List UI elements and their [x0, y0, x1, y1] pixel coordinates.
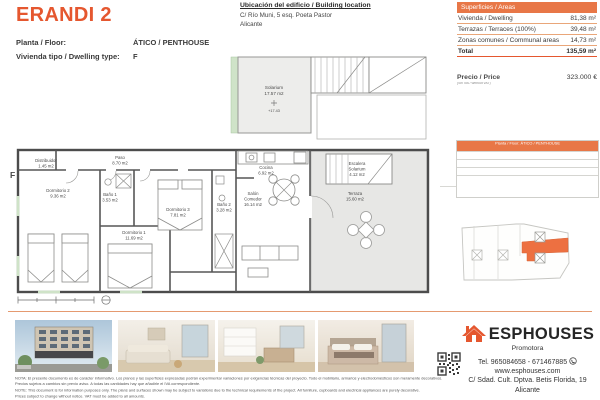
room-label-solarium: Solarium — [265, 85, 283, 90]
area-value: 81,38 m² — [570, 15, 596, 22]
room-label-salon-2: Comedor — [244, 197, 262, 202]
floor-key-row — [457, 151, 598, 159]
location-city: Alicante — [240, 21, 371, 28]
areas-table: Superficies / Areas Vivienda / Dwelling … — [457, 2, 597, 57]
room-label-salon-1: Salón — [248, 191, 260, 196]
kitchen-photo — [218, 320, 315, 372]
building-location: Ubicación del edificio / Building locati… — [240, 2, 371, 28]
total-value: 135,59 m² — [566, 48, 596, 55]
photo-thumbnail-building — [15, 320, 112, 372]
room-label-bano-1: Baño 1 — [103, 192, 117, 197]
brand-logo: ESPHOUSES — [455, 324, 600, 344]
area-label: Terrazas / Terraces (100%) — [458, 26, 536, 33]
room-area-dormitorio-2: 9.36 m2 — [50, 194, 66, 199]
room-label-distribuidor: Distribuidor — [35, 158, 57, 163]
house-icon — [461, 324, 487, 344]
table-row: Vivienda / Dwelling 81,38 m² — [457, 13, 597, 24]
room-area-cocina: 6.92 m2 — [258, 171, 274, 176]
room-area-dormitorio-3: 7.81 m2 — [170, 213, 186, 218]
floor-value: ÁTICO / PENTHOUSE — [133, 32, 209, 50]
total-label: Total — [458, 48, 473, 55]
unit-letter: F — [10, 170, 15, 180]
room-area-escalera: 4.12 m2 — [349, 172, 365, 177]
table-row: Terrazas / Terraces (100%) 39,48 m² — [457, 24, 597, 35]
area-value: 39,48 m² — [570, 26, 596, 33]
price-block: Precio / Price (Sin IVA / Without VAT) 3… — [457, 74, 597, 88]
legal-disclaimer: NOTA: El presente documento es de caráct… — [15, 376, 437, 400]
solarium-plan: Solarium 17.57 m2 +17.43 — [226, 52, 432, 142]
room-area-salon: 16.14 m2 — [244, 202, 263, 207]
phone-icon — [569, 357, 577, 365]
room-area-paso: 8.70 m2 — [112, 161, 128, 166]
floor-key-table: Planta / Floor: ÁTICO / PENTHOUSE — [456, 140, 599, 198]
brand-phone: Tel. 965084658 - 671467885 — [455, 357, 600, 367]
area-value: 14,73 m² — [570, 37, 596, 44]
living-room-photo — [118, 320, 215, 372]
room-area-bano-1: 3.53 m2 — [102, 198, 118, 203]
brand-website[interactable]: www.esphouses.com — [455, 367, 600, 376]
project-title: ERANDI 2 — [16, 4, 112, 26]
room-label-cocina: Cocina — [259, 165, 273, 170]
scale-bar — [18, 296, 110, 304]
brand-name: ESPHOUSES — [489, 325, 594, 344]
page-title: ERANDI 2 — [16, 4, 112, 27]
photo-thumbnail-bedroom — [318, 320, 414, 372]
floor-key-row — [457, 175, 598, 197]
floor-key-row — [457, 159, 598, 167]
areas-table-header: Superficies / Areas — [457, 2, 597, 13]
roof-outline — [317, 95, 426, 139]
room-label-escalera-1: Escalera — [349, 161, 366, 166]
room-area-dormitorio-1: 11.69 m2 — [125, 236, 143, 241]
area-label: Zonas comunes / Communal areas — [458, 37, 559, 44]
room-label-paso: Paso — [115, 155, 125, 160]
room-label-dormitorio-3: Dormitorio 3 — [166, 207, 190, 212]
location-title: Ubicación del edificio / Building locati… — [240, 2, 371, 9]
area-label: Vivienda / Dwelling — [458, 15, 513, 22]
room-label-dormitorio-1: Dormitorio 1 — [122, 230, 146, 235]
footer-divider — [8, 311, 592, 312]
location-street: C/ Río Muni, 5 esq. Poeta Pastor — [240, 12, 371, 19]
price-value: 323.000 € — [567, 74, 597, 88]
building-photo — [15, 320, 112, 372]
table-row: Zonas comunes / Communal areas 14,73 m² — [457, 35, 597, 46]
level-value: +17.43 — [268, 109, 280, 113]
price-label: Precio / Price — [457, 74, 500, 81]
brand-address-street: C/ Sdad. Cult. Dptva. Betis Florida, 19 — [455, 376, 600, 385]
kitchen-counter — [238, 151, 308, 164]
brand-address-city: Alicante — [455, 386, 600, 395]
dwelling-type-label: Vivienda tipo / Dwelling type: — [16, 52, 120, 61]
brand-block: ESPHOUSES Promotora Tel. 965084658 - 671… — [455, 324, 600, 395]
dining-table-icon — [269, 175, 299, 205]
photo-thumbnail-kitchen — [218, 320, 315, 372]
disclaimer-line: Prices subject to change without notice.… — [15, 394, 437, 400]
table-row-total: Total 135,59 m² — [457, 46, 597, 57]
floor-key-row — [457, 167, 598, 175]
brand-tagline: Promotora — [455, 345, 600, 352]
room-area-distribuidor: 1.45 m2 — [38, 164, 54, 169]
floor-plan: F Distribuidor 1.45 m2 Paso 8.70 m2 Dorm… — [8, 138, 438, 308]
room-area-bano-2: 3.28 m2 — [216, 208, 232, 213]
room-label-dormitorio-2: Dormitorio 2 — [46, 188, 70, 193]
dwelling-type-value: F — [133, 46, 138, 64]
green-facade-strip — [231, 57, 238, 133]
floor-key-header: Planta / Floor: ÁTICO / PENTHOUSE — [457, 141, 598, 151]
price-note: (Sin IVA / Without VAT) — [457, 82, 491, 85]
room-area-terraza: 15.60 m2 — [346, 197, 365, 202]
sofa-icon — [242, 246, 298, 277]
dwelling-type-row: Vivienda tipo / Dwelling type: — [16, 46, 120, 64]
room-area-solarium: 17.57 m2 — [264, 91, 284, 96]
room-label-bano-2: Baño 2 — [217, 202, 231, 207]
room-label-terraza: Terraza — [348, 191, 363, 196]
room-label-escalera-2: Solarium — [349, 167, 366, 172]
bedroom-photo — [318, 320, 414, 372]
photo-thumbnail-living-room — [118, 320, 215, 372]
stairwell — [311, 57, 426, 93]
unit-key-plan — [452, 216, 600, 304]
